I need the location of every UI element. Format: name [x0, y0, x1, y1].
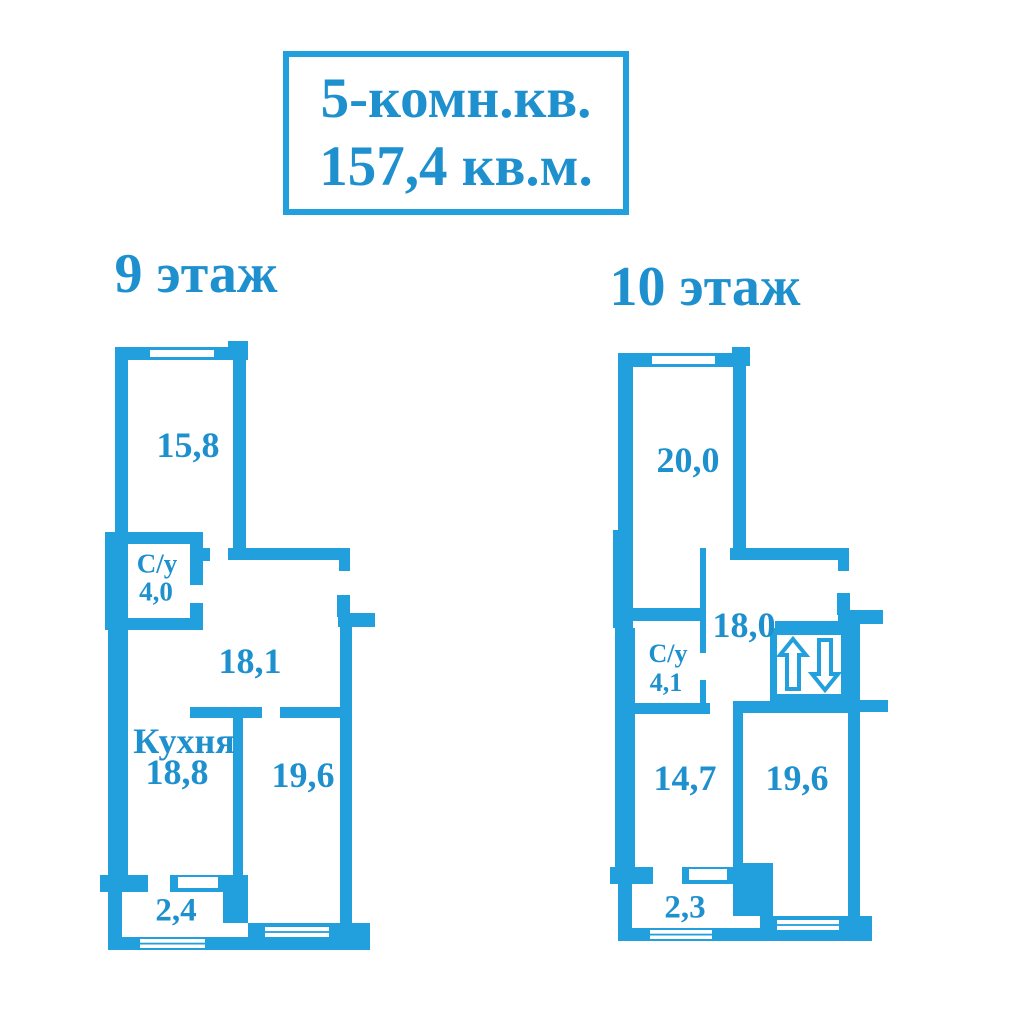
kitchen-area: 18,8: [146, 754, 209, 790]
apartment-type: 5-комн.кв.: [321, 65, 592, 133]
apartment-title-box: 5-комн.кв. 157,4 кв.м.: [283, 51, 629, 215]
room-area-label: 15,8: [157, 427, 220, 463]
floorplan-page: 5-комн.кв. 157,4 кв.м. 9 этаж 10 этаж: [0, 0, 1024, 1036]
bathroom-area: 4,1: [650, 670, 683, 696]
lift-up-down-icon: [770, 628, 848, 701]
balcony-area-label: 2,3: [664, 892, 705, 925]
bathroom-label: С/у: [137, 551, 178, 578]
bathroom-label: С/у: [649, 641, 688, 667]
apartment-area: 157,4 кв.м.: [319, 133, 592, 201]
hall-area-label: 18,0: [713, 607, 776, 643]
floor-10-label: 10 этаж: [610, 255, 801, 319]
room-area-label: 19,6: [272, 757, 335, 793]
balcony-area-label: 2,4: [155, 895, 196, 928]
floor-10-plan: 20,0 18,0 С/у 4,1 14,7 19,6 2,3: [605, 338, 890, 963]
room-area-label: 14,7: [654, 760, 717, 796]
room-area-label: 19,6: [766, 760, 829, 796]
hall-area-label: 18,1: [219, 643, 282, 679]
floor-9-plan: 15,8 С/у 4,0 18,1 Кухня 18,8 19,6 2,4: [100, 338, 380, 963]
room-area-label: 20,0: [657, 442, 720, 478]
bathroom-area: 4,0: [139, 579, 173, 606]
floor-9-label: 9 этаж: [115, 242, 278, 306]
